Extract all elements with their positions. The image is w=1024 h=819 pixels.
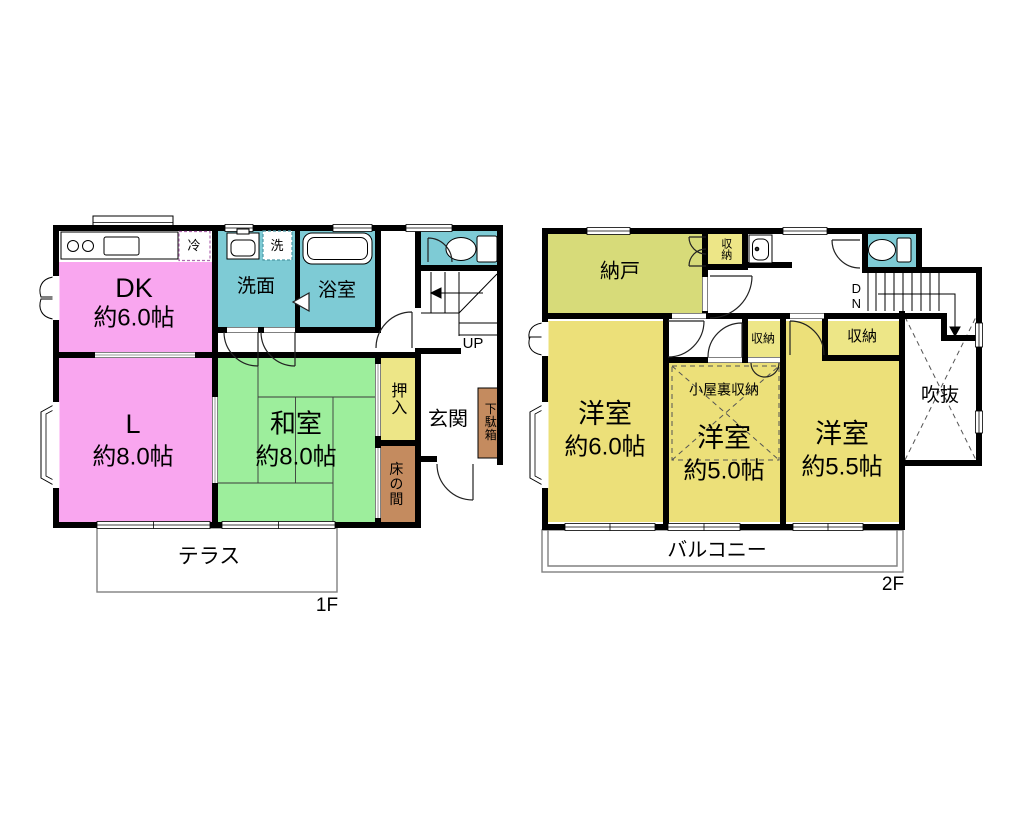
opening-nando-door: [703, 277, 708, 311]
washbasin-tap-icon: [237, 229, 249, 234]
wall-toilet-south: [421, 265, 503, 271]
label-nando: 納戸: [600, 262, 640, 283]
wall-toilet2-east: [916, 228, 922, 273]
window-2f-nando: [587, 228, 630, 235]
window-1f-toilet: [406, 225, 452, 232]
label-western3: 洋室: [815, 420, 869, 448]
opening-2f-casement: [542, 322, 549, 356]
hall2f-casement-window: [529, 337, 542, 355]
wall-genkan-west: [415, 352, 421, 528]
label-washitsu-size: 約8.0帖: [255, 444, 336, 469]
washbasin-2f-drain-icon: [755, 247, 759, 251]
wall-genkan-step: [421, 456, 437, 462]
bathtub-inner-icon: [308, 238, 368, 260]
label-closet-right: 収納: [847, 329, 877, 345]
label-balcony: バルコニー: [667, 541, 767, 562]
opening-room2-door: [708, 358, 742, 363]
label-dk: DK: [115, 274, 153, 302]
stove-burner-icon: [68, 241, 79, 252]
label-oshiire: 押入: [388, 382, 405, 416]
label-western2: 洋室: [697, 424, 751, 452]
wall-1f-right: [497, 225, 503, 465]
wall-senmen-bath: [295, 229, 300, 333]
window-1f-bath: [333, 225, 372, 232]
wall-toilet2-west: [862, 228, 868, 273]
label-void: 吹抜: [921, 386, 959, 406]
room-washitsu: [218, 358, 375, 522]
label-living: L: [125, 410, 140, 438]
label-terrace: テラス: [178, 546, 241, 568]
opening-attic-door: [748, 358, 780, 363]
label-tokonoma: 床の間: [389, 462, 404, 507]
label-genkan: 玄関: [428, 410, 468, 431]
opening-room1-door: [672, 314, 706, 319]
label-dk-size: 約6.0帖: [93, 305, 174, 330]
stove-burner-icon: [83, 241, 94, 252]
balcony-sliding-door: [668, 524, 740, 531]
label-floor1: 1F: [316, 596, 338, 616]
label-western1: 洋室: [578, 400, 632, 428]
label-washitsu: 和室: [270, 410, 322, 437]
label-stairs-up: UP: [463, 336, 484, 352]
wall-west2-east: [780, 313, 786, 530]
label-attic: 小屋裏収納: [689, 383, 759, 398]
room-fills: [53, 225, 983, 530]
opening-room3-door: [790, 314, 824, 319]
wall-bath-corridor: [375, 225, 381, 333]
label-senmen: 洗面: [237, 277, 275, 297]
toilet-bowl-icon: [446, 238, 476, 261]
label-western3-size: 約5.5帖: [801, 454, 882, 479]
kitchen-sink-icon: [104, 237, 139, 255]
toilet-2f-tank-icon: [897, 238, 911, 262]
wall-2f-far-right: [976, 267, 982, 466]
wall-oshiire-top: [375, 352, 421, 358]
toilet-tank-icon: [477, 236, 497, 262]
window-2f-void: [976, 411, 983, 433]
dk-casement-window: [40, 277, 53, 297]
wall-oshiire-tokonoma: [375, 440, 421, 446]
label-closet-mid: 収納: [751, 333, 775, 346]
label-washer: 洗: [270, 239, 283, 253]
window-2f-hall: [783, 228, 827, 235]
floorplan-drawing: [0, 0, 1024, 819]
label-getabako: 下駄箱: [484, 403, 497, 442]
label-fridge: 冷: [187, 239, 200, 253]
wall-stairs-south: [415, 348, 461, 354]
wall-closet-right-west: [822, 313, 828, 361]
opening-senmen-door: [227, 328, 258, 333]
wall-west1-east: [663, 313, 669, 530]
terrace-sliding-door: [222, 522, 335, 529]
wall-2f-right-main: [899, 311, 905, 530]
balcony-sliding-door: [565, 524, 655, 531]
label-floor2: 2F: [882, 575, 904, 595]
label-western2-size: 約5.0帖: [683, 458, 764, 483]
wall-stairs-south-2f: [862, 313, 945, 319]
balcony-sliding-door: [793, 524, 863, 531]
label-western1-size: 約6.0帖: [564, 434, 645, 459]
opening-room1-bay: [542, 402, 549, 488]
toilet-2f-bowl-icon: [869, 240, 896, 261]
label-bath: 浴室: [318, 281, 356, 301]
wall-closet-top-south: [702, 264, 748, 270]
washbasin-bowl-icon: [231, 240, 255, 256]
wall-stairs-north: [862, 267, 982, 273]
wall-closet-mid-west: [742, 313, 748, 363]
label-stairs-down: DN: [849, 281, 863, 311]
dk-casement-window: [40, 299, 53, 319]
wall-closet-right-south: [822, 355, 905, 361]
window-2f-void: [976, 323, 983, 347]
opening-hall-door: [264, 328, 295, 333]
label-closet-top: 収納: [719, 238, 731, 260]
terrace-sliding-door: [97, 522, 210, 529]
opening-dk-casement: [53, 276, 60, 320]
wall-void-bottom: [905, 460, 982, 466]
opening-l-bay: [53, 402, 60, 488]
wall-toilet-west: [415, 225, 421, 308]
floorplan-image: { "floor1": { "label": "1F", "dk": { "na…: [0, 0, 1024, 819]
label-living-size: 約8.0帖: [92, 444, 173, 469]
